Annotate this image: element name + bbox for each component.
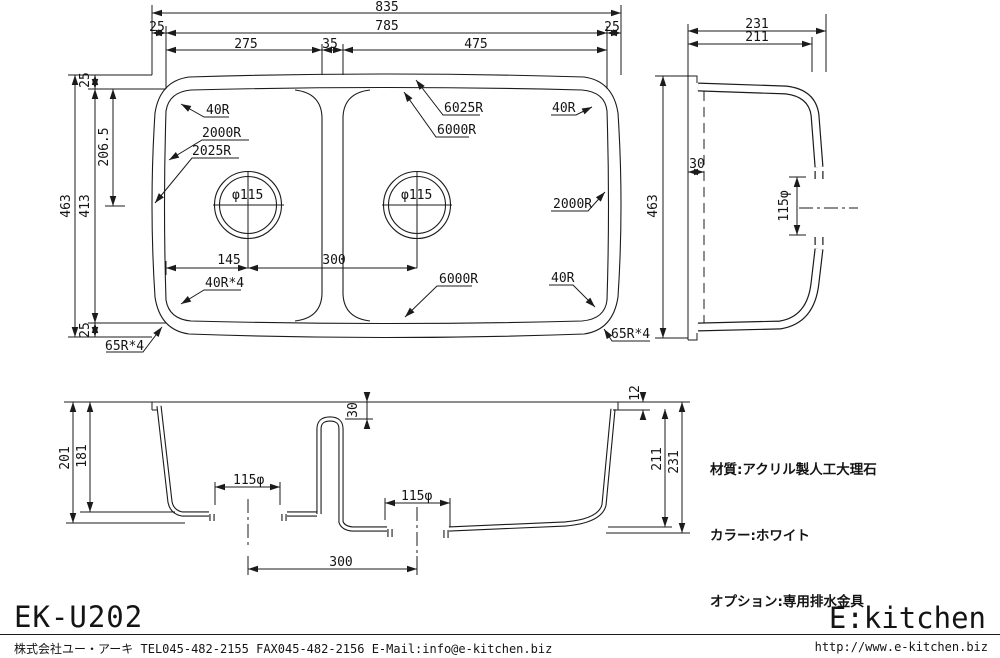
company-contact: 株式会社ユー・アーキ TEL045-482-2155 FAX045-482-21… <box>14 640 552 657</box>
side-extension-lines <box>655 14 826 338</box>
label-right-edge-inner-r: 2000R <box>553 197 592 212</box>
side-dimension-lines <box>663 31 826 338</box>
dim-left-bowl-width: 275 <box>234 37 257 52</box>
label-drain-right-dia: φ115 <box>401 188 432 203</box>
dim-side-flange-offset: 30 <box>689 157 705 172</box>
dim-front-drain-pitch: 300 <box>329 555 352 570</box>
dim-front-drain-left-dia: 115φ <box>233 473 264 488</box>
dim-front-left-depth-outer: 201 <box>58 446 73 469</box>
dim-right-bowl-width: 475 <box>464 37 487 52</box>
dim-drain-center-offset: 206.5 <box>97 127 112 166</box>
website-url: http://www.e-kitchen.biz <box>815 640 988 654</box>
front-extension-lines <box>64 402 690 575</box>
dim-total-width: 835 <box>375 0 398 15</box>
dim-margin-top: 25 <box>78 72 93 88</box>
dim-drain-pitch: 300 <box>322 253 345 268</box>
label-left-edge-inner-r: 2000R <box>202 126 241 141</box>
label-top-edge-inner-r: 6000R <box>437 123 476 138</box>
dim-margin-bottom: 25 <box>78 322 93 338</box>
plan-dimension-lines <box>75 13 621 337</box>
side-section-view: 231 211 463 30 115φ <box>646 14 858 340</box>
dim-front-divider-drop: 30 <box>346 402 361 418</box>
label-corner-tr: 40R <box>552 101 576 116</box>
dim-inner-height: 413 <box>78 194 93 217</box>
label-outer-corner-br: 65R*4 <box>611 327 650 342</box>
front-dimension-lines <box>73 394 682 569</box>
dim-front-drain-right-dia: 115φ <box>401 489 432 504</box>
dim-side-inner-depth: 211 <box>745 30 768 45</box>
spec-material: 材質:アクリル製人工大理石 <box>710 459 877 481</box>
dim-margin-right: 25 <box>604 20 620 35</box>
dim-total-height: 463 <box>59 194 74 217</box>
drain-hole-right <box>382 171 452 268</box>
label-bottom-edge-inner-r: 6000R <box>439 272 478 287</box>
label-corner-tl: 40R <box>206 103 230 118</box>
dim-side-total-height: 463 <box>646 194 661 217</box>
dim-front-right-depth-inner: 211 <box>650 447 665 470</box>
side-rim-edge <box>688 76 697 340</box>
plan-extension-lines <box>68 5 621 337</box>
dim-drain-left-offset: 145 <box>217 253 240 268</box>
plan-divider <box>295 90 370 321</box>
label-outer-corner-bl: 65R*4 <box>105 339 144 354</box>
front-rim-line <box>152 402 627 410</box>
dim-divider-width: 35 <box>322 37 338 52</box>
label-top-edge-outer-r: 6025R <box>444 101 483 116</box>
plan-radius-leaders <box>106 80 650 352</box>
side-bowl-wall <box>698 87 819 327</box>
front-bowl-walls <box>159 406 613 538</box>
dim-front-right-depth-outer: 231 <box>667 450 682 473</box>
label-corner-bl: 40R*4 <box>205 276 244 291</box>
dim-side-drain-dia: 115φ <box>777 190 792 221</box>
dim-margin-left: 25 <box>149 20 165 35</box>
plan-view: 835 25 785 25 275 35 475 463 25 413 25 2… <box>59 0 650 354</box>
drawing-sheet: 835 25 785 25 275 35 475 463 25 413 25 2… <box>0 0 1000 658</box>
label-corner-br: 40R <box>551 271 575 286</box>
dim-front-left-depth-inner: 181 <box>75 444 90 467</box>
label-left-edge-outer-r: 2025R <box>192 144 231 159</box>
dim-front-rim-edge: 12 <box>628 385 643 401</box>
spec-color: カラー:ホワイト <box>710 525 877 547</box>
model-number: EK-U202 <box>14 600 143 634</box>
brand-logo: E:kitchen <box>829 601 986 635</box>
front-section-view: 201 181 30 12 211 231 115φ 115φ 300 <box>58 385 690 575</box>
label-drain-left-dia: φ115 <box>232 188 263 203</box>
dim-inner-width: 785 <box>375 19 398 34</box>
